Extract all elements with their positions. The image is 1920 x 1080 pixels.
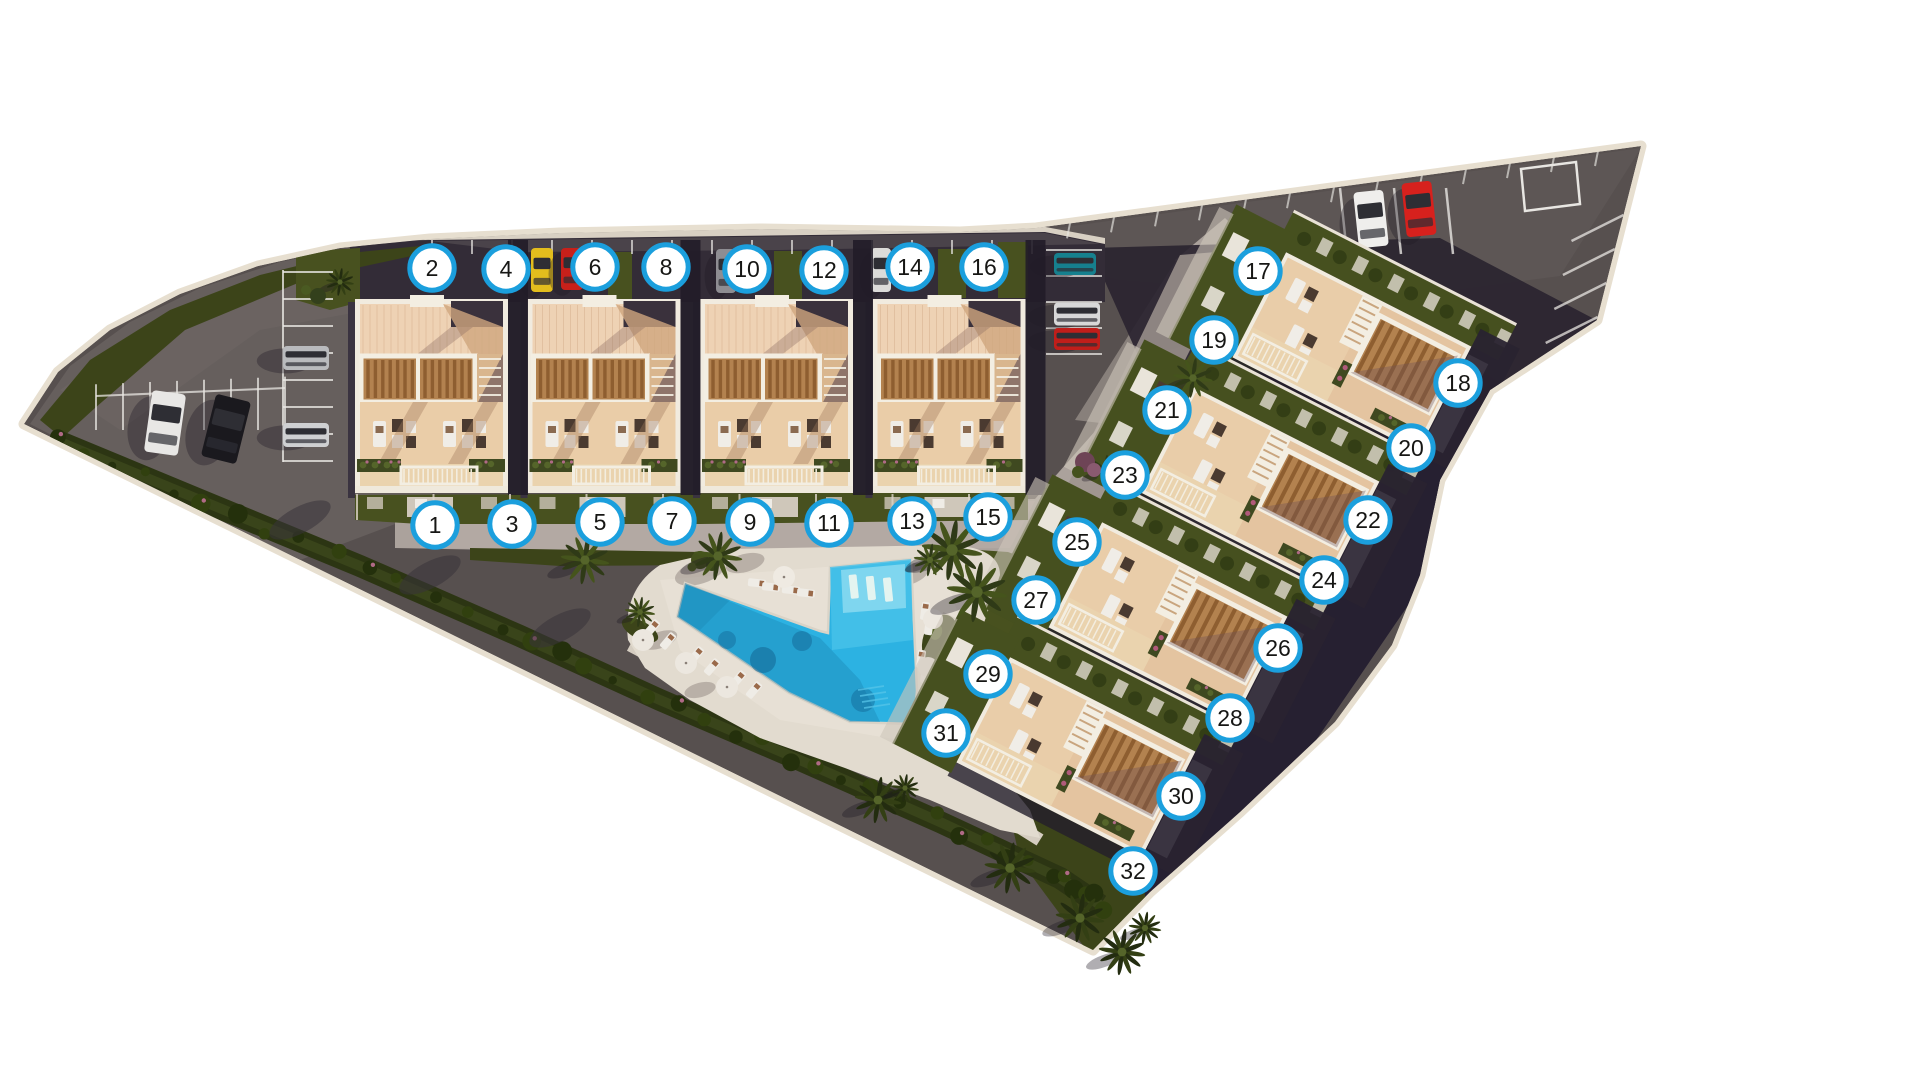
svg-text:4: 4 — [500, 256, 513, 282]
svg-text:29: 29 — [975, 661, 1001, 687]
svg-text:30: 30 — [1168, 783, 1194, 809]
svg-text:8: 8 — [660, 254, 673, 280]
svg-text:27: 27 — [1023, 587, 1049, 613]
svg-text:20: 20 — [1398, 435, 1424, 461]
svg-text:1: 1 — [429, 512, 442, 538]
svg-text:14: 14 — [897, 254, 923, 280]
svg-text:26: 26 — [1265, 635, 1291, 661]
svg-text:22: 22 — [1355, 507, 1381, 533]
svg-text:31: 31 — [933, 720, 959, 746]
svg-text:24: 24 — [1311, 567, 1337, 593]
svg-text:5: 5 — [594, 509, 607, 535]
svg-text:6: 6 — [589, 254, 602, 280]
svg-text:16: 16 — [971, 254, 997, 280]
svg-text:32: 32 — [1120, 858, 1146, 884]
svg-text:13: 13 — [899, 508, 925, 534]
svg-text:10: 10 — [734, 256, 760, 282]
svg-text:12: 12 — [811, 257, 837, 283]
svg-text:15: 15 — [975, 504, 1001, 530]
svg-text:11: 11 — [817, 510, 841, 536]
svg-text:21: 21 — [1154, 397, 1180, 423]
svg-text:19: 19 — [1201, 327, 1227, 353]
svg-text:9: 9 — [744, 509, 757, 535]
svg-text:2: 2 — [426, 255, 439, 281]
svg-text:3: 3 — [506, 511, 519, 537]
svg-text:28: 28 — [1217, 705, 1243, 731]
svg-text:18: 18 — [1445, 370, 1471, 396]
svg-text:7: 7 — [666, 508, 679, 534]
svg-text:17: 17 — [1245, 258, 1271, 284]
svg-text:25: 25 — [1064, 529, 1090, 555]
svg-text:23: 23 — [1112, 462, 1138, 488]
